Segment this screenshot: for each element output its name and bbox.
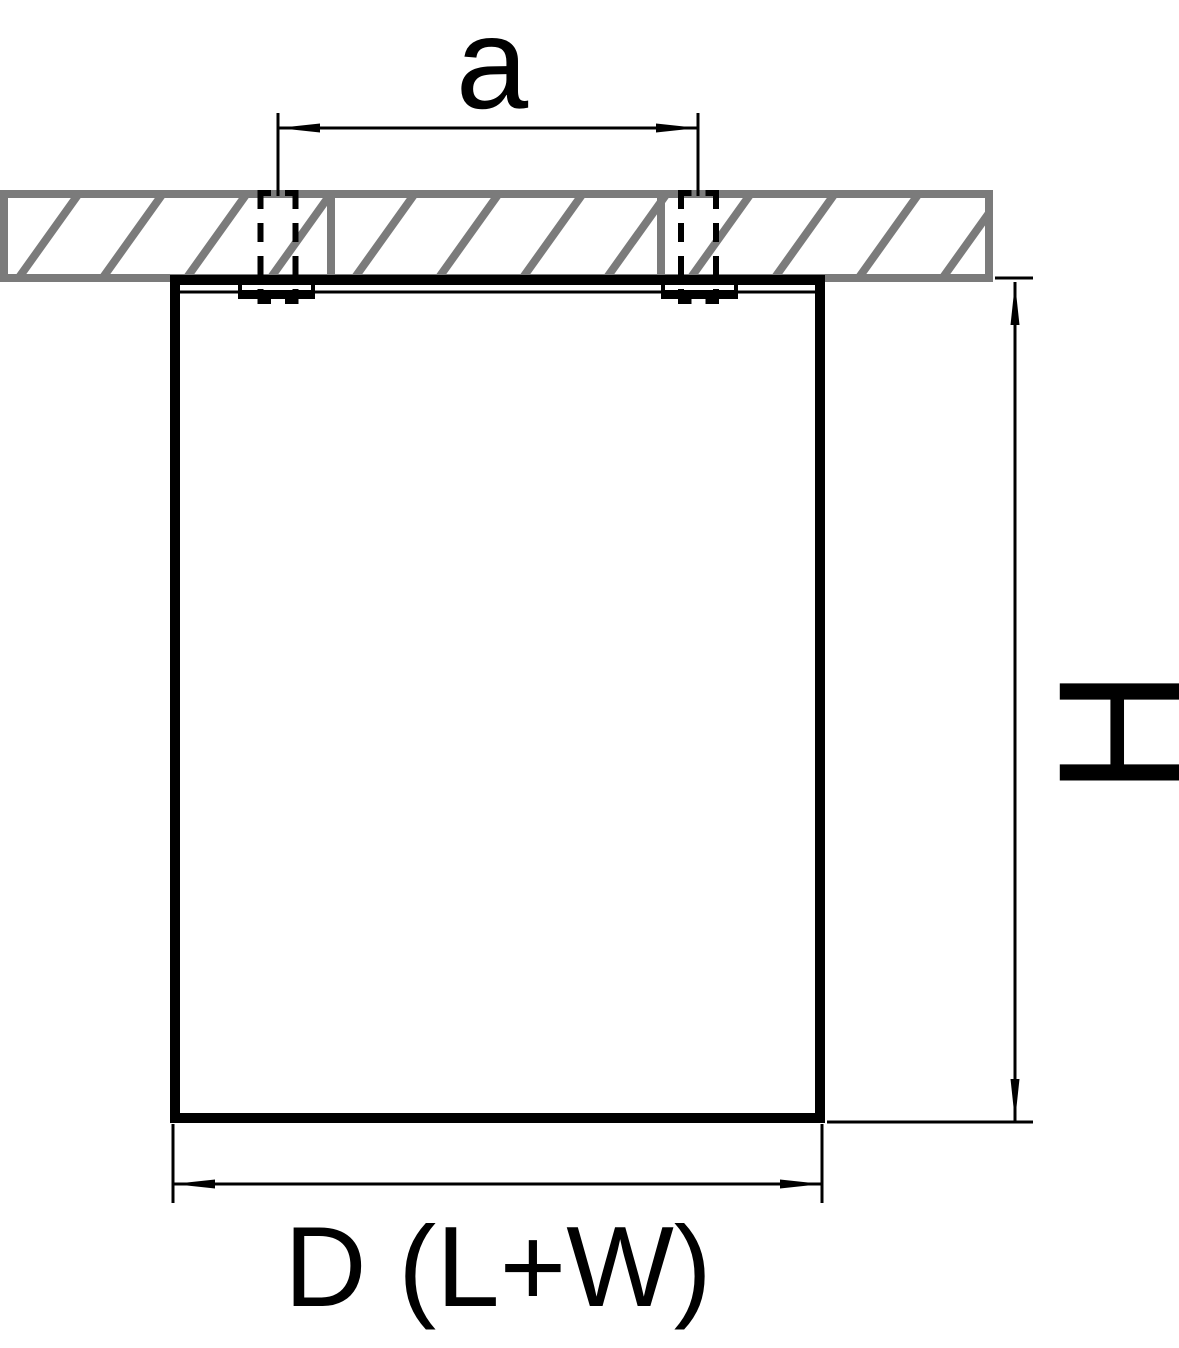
tab-clamp-bar	[661, 290, 738, 299]
arrowhead-right-icon	[656, 124, 698, 133]
arrowhead-left-icon	[173, 1180, 215, 1189]
fixture-outline	[175, 280, 820, 1118]
arrowhead-right-icon	[780, 1180, 822, 1189]
fixture-dimension-diagram: a H D (L+W)	[0, 0, 1179, 1348]
dimension-d-label: D (L+W)	[284, 1204, 712, 1331]
ceiling-section	[4, 185, 1009, 290]
dimension-a: a	[278, 0, 698, 196]
drawing-canvas: a H D (L+W)	[0, 0, 1179, 1348]
fixture-body	[175, 280, 820, 1118]
arrowhead-up-icon	[1011, 283, 1020, 325]
dimension-h-label: H	[1022, 669, 1179, 795]
dimension-h: H	[827, 278, 1179, 1122]
dimension-d: D (L+W)	[173, 1124, 822, 1331]
dimension-a-label: a	[456, 0, 529, 136]
tab-clamp-bar	[238, 290, 315, 299]
arrowhead-down-icon	[1011, 1079, 1020, 1121]
arrowhead-left-icon	[278, 124, 320, 133]
